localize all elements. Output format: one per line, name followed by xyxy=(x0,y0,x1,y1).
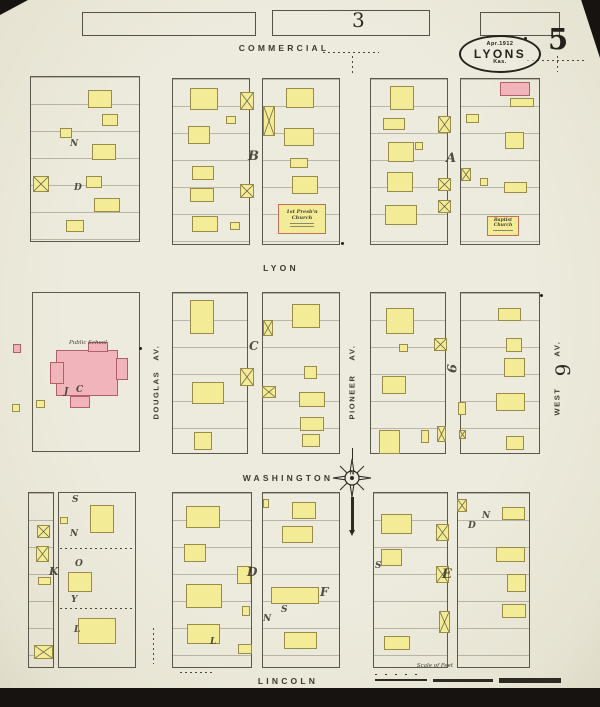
stable-building xyxy=(457,499,467,512)
frame-building xyxy=(510,98,534,107)
stable-building xyxy=(438,178,451,191)
presbyterian-church-label: 1st Presb'n Church xyxy=(281,210,323,227)
frame-building xyxy=(186,506,220,528)
frame-building xyxy=(192,216,218,232)
frame-building xyxy=(387,172,413,192)
frame-building xyxy=(292,502,316,519)
block-letter: L xyxy=(210,638,216,647)
stable-building xyxy=(240,184,254,198)
frame-building xyxy=(68,572,92,592)
frame-building xyxy=(78,618,116,644)
block-letter: C xyxy=(76,386,83,395)
presbyterian-church-name: 1st Presb'n Church xyxy=(286,209,317,221)
stable-building xyxy=(459,430,466,439)
stable-building xyxy=(438,116,451,133)
frame-building xyxy=(60,128,72,138)
brick-building xyxy=(13,344,21,353)
adjacent-sheet-outline xyxy=(82,12,256,36)
frame-building xyxy=(190,300,214,334)
frame-building xyxy=(192,382,224,404)
block-letter: E xyxy=(442,568,452,581)
brick-building xyxy=(500,82,530,96)
brick-building xyxy=(70,396,90,408)
adjacent-sheet-number-top: 3 xyxy=(352,8,365,32)
frame-building xyxy=(230,222,240,230)
north-arrow-line xyxy=(351,497,354,531)
frame-building xyxy=(299,392,325,407)
frame-building xyxy=(480,178,488,186)
frame-building xyxy=(292,176,318,194)
frame-building xyxy=(184,544,206,562)
dotted-line xyxy=(352,56,353,74)
frame-building xyxy=(302,434,320,447)
stable-building xyxy=(33,176,49,192)
frame-building xyxy=(502,604,526,618)
frame-building xyxy=(292,304,320,328)
survey-dot xyxy=(139,347,142,350)
frame-building xyxy=(381,549,402,566)
compass-rose-icon: N xyxy=(332,458,372,498)
frame-building xyxy=(190,188,214,202)
frame-building xyxy=(66,220,84,232)
block-letter: O xyxy=(75,560,83,569)
avenue-suffix: AV. xyxy=(151,345,160,361)
frame-building xyxy=(506,436,524,450)
stable-building xyxy=(439,611,450,633)
frame-building xyxy=(458,402,466,415)
scale-segment xyxy=(375,679,427,681)
frame-building xyxy=(102,114,118,126)
frame-building xyxy=(12,404,20,412)
scale-segment xyxy=(433,679,493,682)
block-letter: D xyxy=(74,184,82,193)
frame-building xyxy=(94,198,120,212)
block-letter: D xyxy=(468,522,476,531)
frame-building xyxy=(192,166,214,180)
street-label-pioneer-av: PIONEER AV. xyxy=(346,345,358,420)
frame-building xyxy=(415,142,423,150)
map-paper: BAC9DFEKSNOYLLSNDNSNDJC 3 5 6 Apr.1912 L… xyxy=(0,0,600,689)
stable-building xyxy=(437,426,446,442)
stable-building xyxy=(461,168,471,181)
frame-building xyxy=(496,393,525,411)
survey-dot xyxy=(341,242,344,245)
stable-building xyxy=(438,200,451,213)
block-letter: C xyxy=(249,340,259,352)
frame-building xyxy=(290,158,308,168)
frame-building xyxy=(502,507,525,520)
block-letter: 9 xyxy=(444,364,457,373)
frame-building xyxy=(242,606,250,616)
block-letter: K xyxy=(49,566,59,577)
frame-building xyxy=(399,344,408,352)
frame-building xyxy=(263,499,269,508)
dotted-line xyxy=(557,56,558,72)
frame-building xyxy=(284,128,314,146)
stable-building xyxy=(34,645,53,659)
frame-building xyxy=(86,176,102,188)
avenue-name: PIONEER xyxy=(347,375,356,420)
frame-building xyxy=(381,514,412,534)
frame-building xyxy=(385,205,417,225)
frame-building xyxy=(92,144,116,160)
stable-building xyxy=(36,546,49,562)
frame-building xyxy=(88,90,112,108)
avenue-suffix: AV. xyxy=(347,345,356,361)
brick-building xyxy=(50,362,64,384)
avenue-name: DOUGLAS xyxy=(151,371,160,420)
frame-building xyxy=(496,547,525,562)
survey-dot xyxy=(540,294,543,297)
frame-building xyxy=(282,526,313,543)
frame-building xyxy=(504,182,527,193)
stable-building xyxy=(240,92,254,110)
frame-building xyxy=(300,417,324,431)
scale-segment xyxy=(499,678,561,683)
frame-building xyxy=(36,400,45,408)
frame-building xyxy=(271,587,319,604)
frame-building xyxy=(60,517,68,524)
adjacent-sheet-outline xyxy=(272,10,430,36)
frame-building xyxy=(506,338,522,352)
block-letter: Y xyxy=(71,596,77,605)
block-letter: D xyxy=(247,566,257,578)
block-letter: J xyxy=(64,388,68,397)
sheet-number: 5 xyxy=(548,22,568,56)
stable-building xyxy=(263,106,275,136)
frame-building xyxy=(186,584,222,608)
frame-building xyxy=(421,430,429,443)
frame-building xyxy=(466,114,479,123)
street-label-commercial: COMMERCIAL xyxy=(228,43,340,53)
frame-building xyxy=(498,308,521,321)
sanborn-map-page: BAC9DFEKSNOYLLSNDNSNDJC 3 5 6 Apr.1912 L… xyxy=(0,0,600,707)
street-label-west-av: WEST AV. xyxy=(551,341,563,416)
avenue-name: WEST xyxy=(552,387,561,415)
frame-building xyxy=(386,308,414,334)
frame-building xyxy=(383,118,405,130)
frame-building xyxy=(379,430,400,454)
frame-building xyxy=(90,505,114,533)
frame-building xyxy=(188,126,210,144)
frame-building xyxy=(284,632,317,649)
scale-label: Scale of Feet xyxy=(398,663,472,669)
street-label-lincoln: LINCOLN xyxy=(248,676,328,686)
scale-ticks xyxy=(375,674,425,675)
stamp-state: Kas. xyxy=(493,60,507,66)
block-letter: S xyxy=(72,496,79,505)
frame-building xyxy=(382,376,406,394)
date-city-stamp: Apr.1912 LYONS Kas. xyxy=(459,35,541,73)
scan-edge xyxy=(0,688,600,707)
frame-building xyxy=(507,574,526,592)
baptist-church-label: Baptist Church xyxy=(487,218,519,231)
stable-building xyxy=(434,338,447,351)
frame-building xyxy=(286,88,314,108)
frame-building xyxy=(505,132,524,149)
frame-building xyxy=(238,644,252,654)
street-label-washington: WASHINGTON xyxy=(240,473,336,483)
stable-building xyxy=(240,368,254,386)
block-letter: F xyxy=(320,586,329,598)
dotted-line xyxy=(60,548,133,549)
frame-building xyxy=(304,366,317,379)
stable-building xyxy=(436,524,449,541)
frame-building xyxy=(390,86,414,110)
block-letter: N xyxy=(70,530,78,539)
frame-building xyxy=(190,88,218,110)
stable-building xyxy=(262,386,276,398)
block-letter: L xyxy=(74,626,80,635)
frame-building xyxy=(38,577,51,585)
scale-bar xyxy=(375,672,563,684)
street-label-lyon: LYON xyxy=(250,263,312,273)
frame-building xyxy=(504,358,525,377)
frame-building xyxy=(384,636,410,650)
frame-building xyxy=(226,116,236,124)
dotted-line xyxy=(60,608,133,609)
street-label-douglas-av: DOUGLAS AV. xyxy=(150,345,162,420)
compass-north-letter: N xyxy=(350,471,354,477)
frame-building xyxy=(388,142,414,162)
block-letter: S xyxy=(281,606,288,615)
avenue-suffix: AV. xyxy=(552,341,561,357)
block-letter: B xyxy=(248,150,259,163)
label-underline xyxy=(290,226,314,227)
block-letter: A xyxy=(446,152,456,165)
block-letter: N xyxy=(263,615,271,624)
brick-building xyxy=(116,358,128,380)
city-block xyxy=(30,76,140,242)
baptist-church-name: Baptist Church xyxy=(494,218,513,228)
dotted-line xyxy=(180,672,214,673)
public-school-label: Public School xyxy=(56,340,120,346)
label-underline xyxy=(290,223,314,224)
label-underline xyxy=(493,230,513,231)
stable-building xyxy=(37,525,50,538)
stable-building xyxy=(263,320,273,336)
block-letter: S xyxy=(375,562,382,571)
frame-building xyxy=(194,432,212,450)
block-letter: N xyxy=(482,512,490,521)
block-letter: N xyxy=(70,140,78,149)
dotted-line xyxy=(153,628,154,664)
